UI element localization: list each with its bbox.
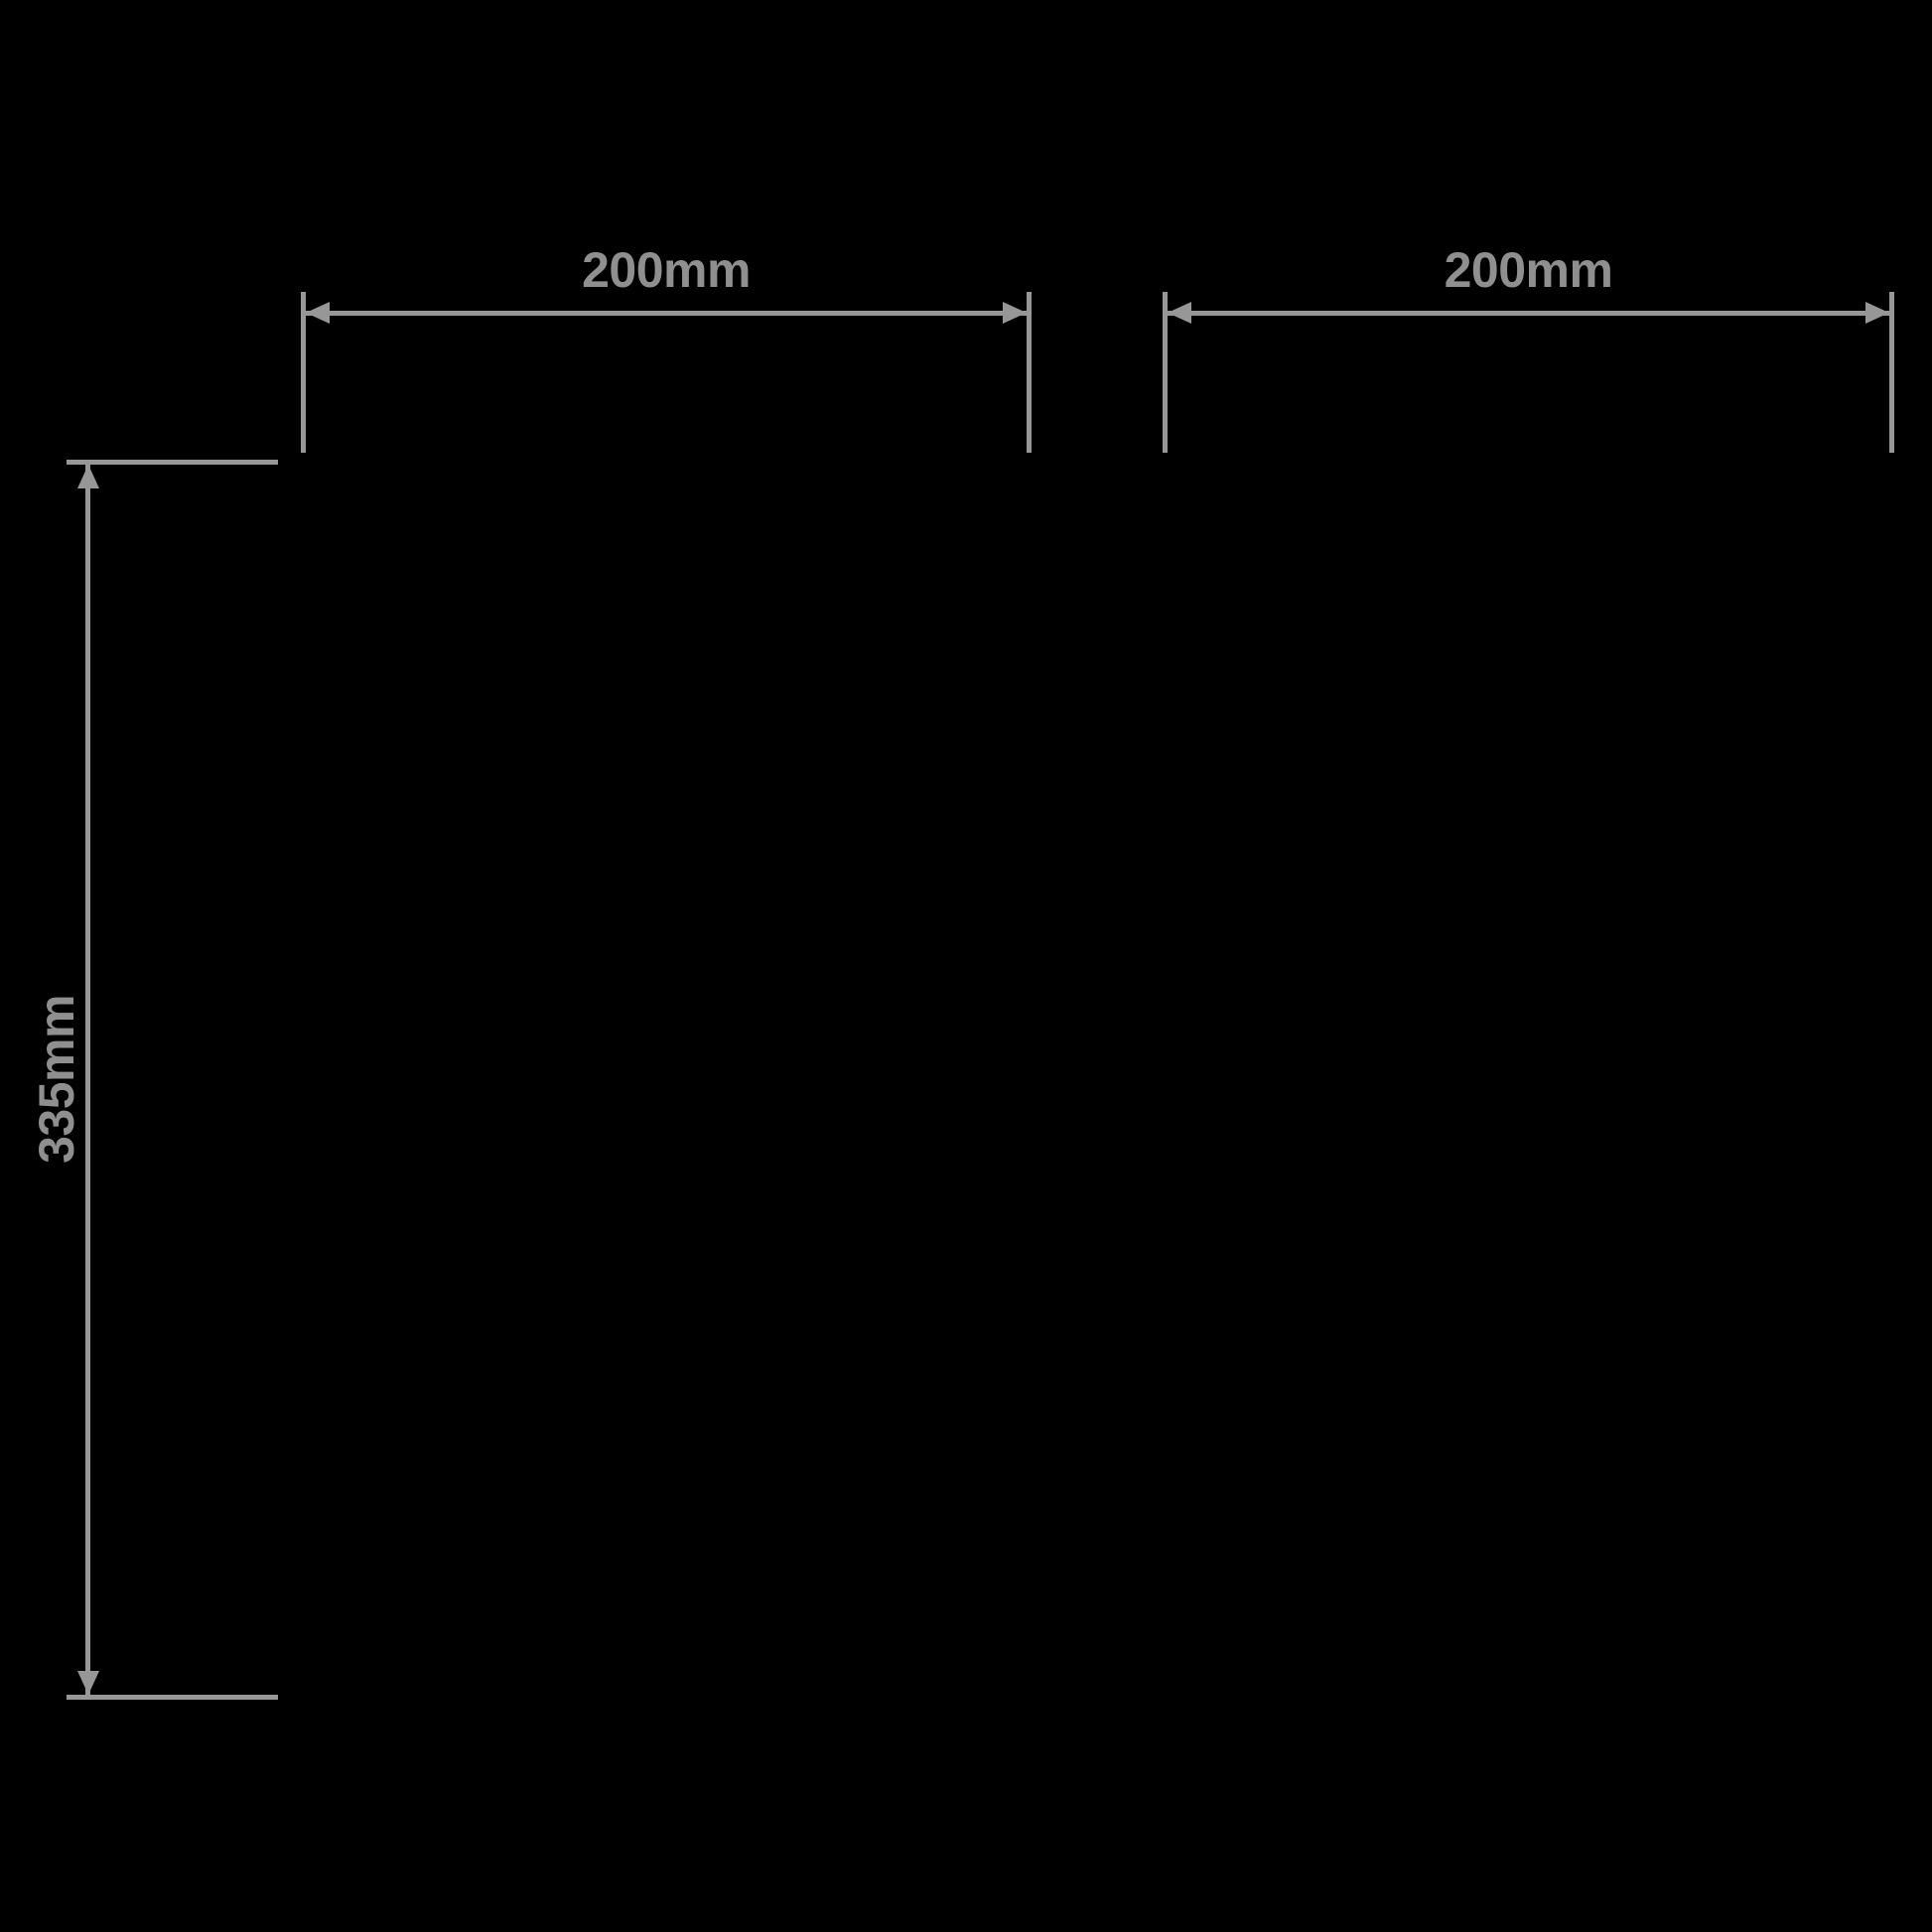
arrow-up-icon (77, 465, 99, 488)
arrow-left-icon (1168, 302, 1191, 324)
dimension-line (85, 465, 90, 1695)
dimension-diagram: 200mm 200mm 335mm (0, 0, 1932, 1932)
arrow-right-icon (1865, 302, 1889, 324)
arrow-right-icon (1003, 302, 1027, 324)
dimension-width-left-label: 200mm (301, 244, 1032, 296)
dimension-width-right-label: 200mm (1163, 244, 1894, 296)
extension-tick (1027, 292, 1032, 453)
dimension-height-label: 335mm (31, 995, 82, 1164)
extension-tick (1889, 292, 1894, 453)
arrow-down-icon (77, 1671, 99, 1695)
arrow-left-icon (306, 302, 330, 324)
extension-tick (67, 1695, 278, 1700)
dimension-line (1166, 311, 1891, 316)
dimension-line (304, 311, 1029, 316)
